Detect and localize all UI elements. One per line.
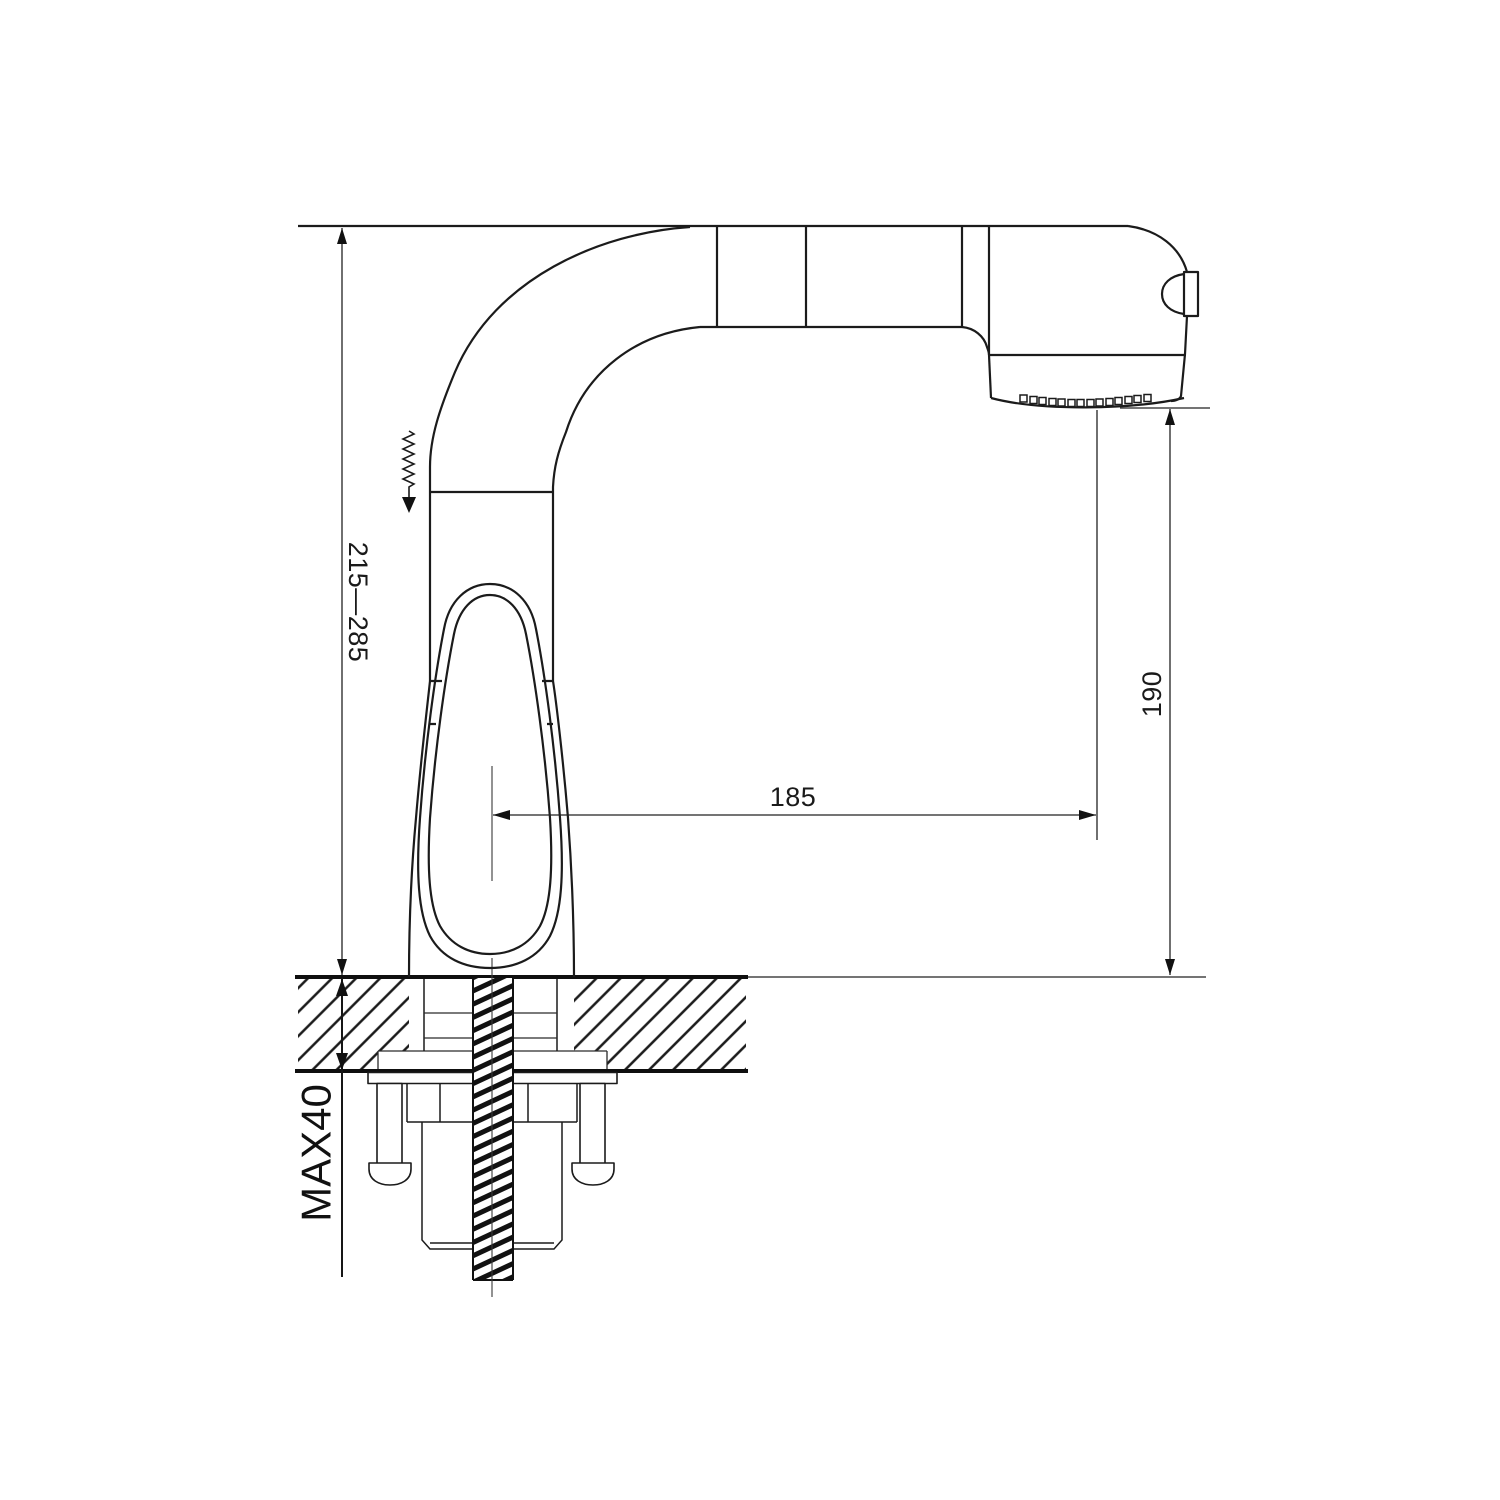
arm-head-fillet bbox=[962, 327, 989, 355]
left-bolt-head bbox=[369, 1163, 411, 1185]
pull-out-arrowhead bbox=[402, 497, 416, 513]
spray-head-right-edge bbox=[1171, 316, 1187, 401]
spray-head-top-corner bbox=[1128, 226, 1187, 272]
spray-head-lower-left bbox=[989, 355, 991, 398]
spout-outer-curve bbox=[430, 227, 690, 681]
handle-outer-line bbox=[418, 584, 562, 968]
nozzle-icon bbox=[1020, 395, 1027, 402]
faucet-installation-diagram: 215—285 MAX40 190 185 bbox=[0, 0, 1500, 1500]
dimension-spout-height: 190 bbox=[1120, 408, 1210, 975]
threaded-rod bbox=[473, 978, 513, 1280]
height-range-label: 215—285 bbox=[343, 542, 373, 663]
max-thickness-label: MAX40 bbox=[293, 1084, 340, 1222]
nozzle-icon bbox=[1068, 400, 1075, 407]
pull-out-zigzag bbox=[403, 431, 414, 498]
countertop-section bbox=[295, 977, 1206, 1071]
nozzle-icon bbox=[1049, 399, 1056, 406]
handle-inner-line bbox=[429, 595, 552, 954]
pull-out-direction-arrow-icon bbox=[402, 431, 416, 513]
nozzle-icon bbox=[1077, 400, 1084, 407]
right-bolt-head bbox=[572, 1163, 614, 1185]
threaded-rod-thread-hatch bbox=[473, 978, 513, 1280]
arrow-up-icon bbox=[1165, 409, 1175, 425]
nozzle-icon bbox=[1087, 400, 1094, 407]
nozzle-icon bbox=[1134, 396, 1141, 403]
arrow-right-icon bbox=[1079, 810, 1096, 820]
spray-head bbox=[989, 226, 1198, 407]
nozzle-icon bbox=[1106, 399, 1113, 406]
nozzle-icon bbox=[1125, 397, 1132, 404]
dimension-reach: 185 bbox=[493, 410, 1097, 840]
body-right-side bbox=[553, 681, 574, 977]
button-bump bbox=[1162, 274, 1184, 314]
nozzle-icon bbox=[1096, 399, 1103, 406]
technical-drawing-page: 215—285 MAX40 190 185 bbox=[0, 0, 1500, 1500]
handle-loop bbox=[418, 584, 562, 968]
nozzle-icon bbox=[1030, 397, 1037, 404]
spout-inner-curve bbox=[553, 327, 700, 681]
nozzle-icon bbox=[1144, 395, 1151, 402]
arrow-left-icon bbox=[493, 810, 510, 820]
button-base bbox=[1184, 272, 1198, 316]
nozzle-icon bbox=[1039, 398, 1046, 405]
nozzle-icon bbox=[1115, 398, 1122, 405]
arrow-down-icon bbox=[1165, 959, 1175, 975]
spout-height-label: 190 bbox=[1137, 671, 1167, 718]
faucet-outline bbox=[298, 226, 1198, 977]
arrow-up-icon bbox=[337, 228, 347, 244]
arrow-down-icon bbox=[337, 959, 347, 975]
left-bolt-shank bbox=[377, 1084, 402, 1164]
nozzle-icon bbox=[1058, 399, 1065, 406]
right-bolt-shank bbox=[580, 1084, 605, 1164]
dimension-height-range: 215—285 bbox=[337, 228, 373, 975]
spray-head-button bbox=[1162, 272, 1198, 316]
spout-arm-joint-lines bbox=[717, 227, 962, 327]
reach-label: 185 bbox=[770, 782, 817, 812]
